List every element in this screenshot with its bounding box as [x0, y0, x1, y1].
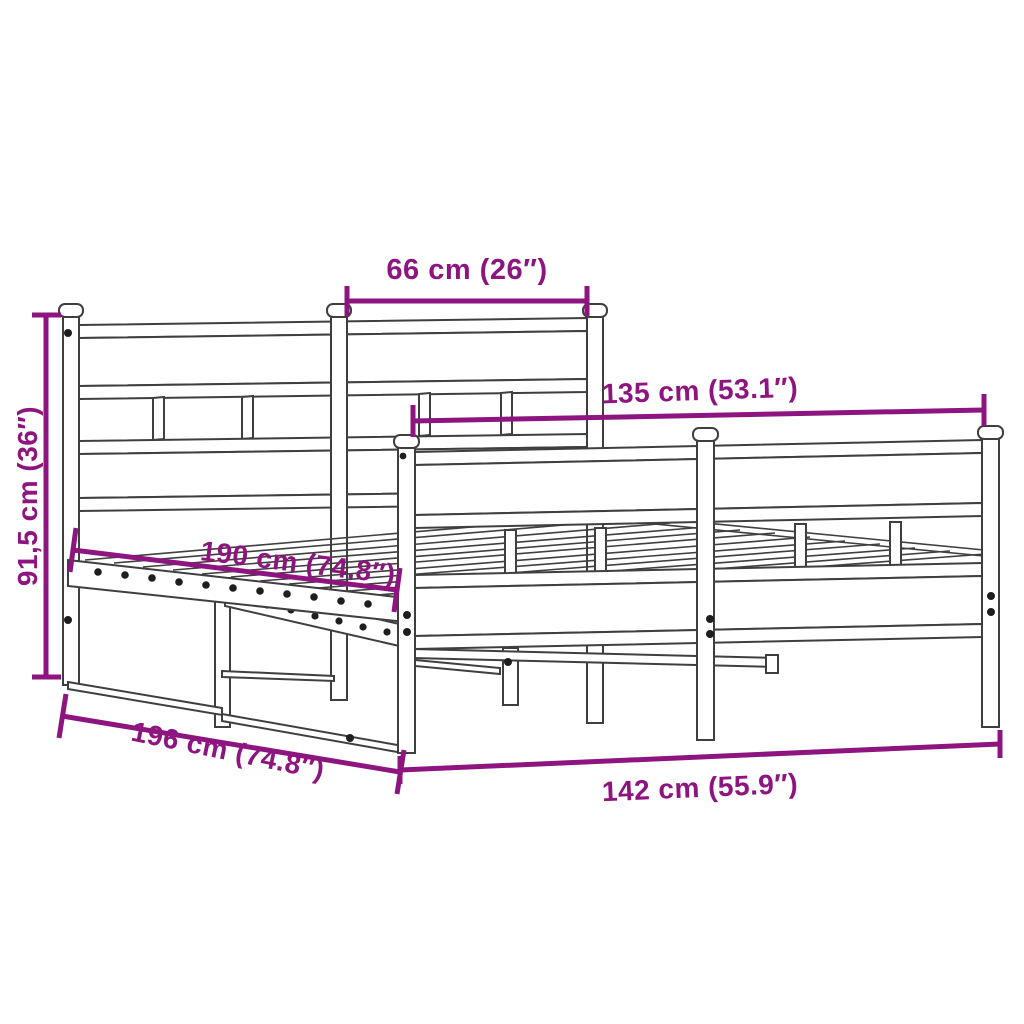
dimension-label-frame-height: 91,5 cm (36″) — [14, 366, 42, 626]
footboard — [394, 426, 1003, 753]
dimension-label-headboard-inner-span: 66 cm (26″) — [347, 256, 587, 285]
dimension-line-66cm — [347, 286, 587, 316]
dimension-diagram: 66 cm (26″) 135 cm (53.1″) 91,5 cm (36″)… — [0, 0, 1024, 1024]
bed-frame-illustration — [0, 0, 1024, 1024]
